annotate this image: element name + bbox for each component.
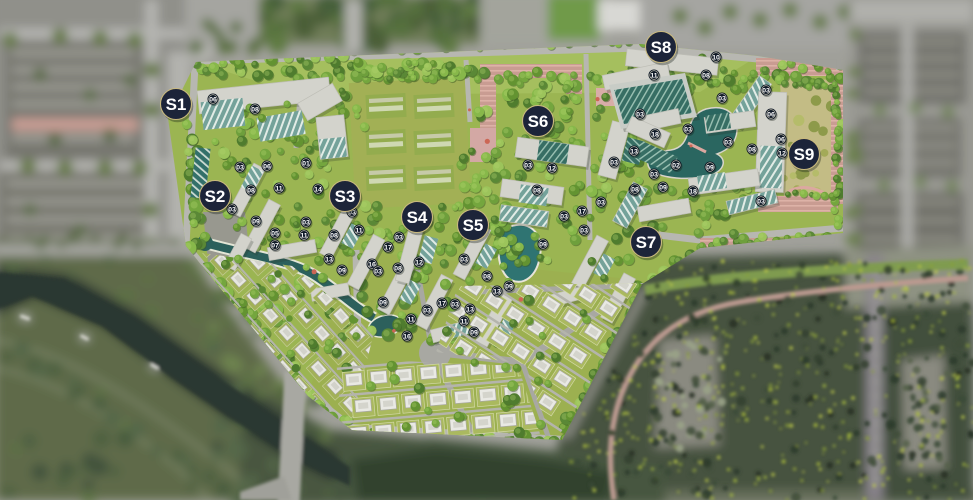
svg-text:03: 03 (597, 200, 605, 207)
svg-text:S5: S5 (463, 216, 484, 235)
svg-text:09: 09 (338, 268, 346, 275)
svg-text:11: 11 (275, 186, 282, 193)
svg-text:03: 03 (395, 235, 403, 242)
svg-text:13: 13 (325, 257, 333, 264)
svg-text:03: 03 (374, 269, 382, 276)
svg-text:07: 07 (271, 243, 279, 250)
svg-text:09: 09 (659, 185, 667, 192)
svg-text:11: 11 (355, 228, 362, 235)
svg-text:05: 05 (271, 231, 279, 238)
svg-text:08: 08 (631, 187, 639, 194)
svg-text:03: 03 (684, 127, 692, 134)
svg-text:S2: S2 (205, 187, 226, 206)
svg-text:09: 09 (470, 330, 478, 337)
svg-text:03: 03 (460, 257, 468, 264)
svg-text:03: 03 (451, 302, 459, 309)
svg-text:11: 11 (407, 317, 414, 324)
svg-text:09: 09 (252, 219, 260, 226)
svg-text:08: 08 (483, 274, 491, 281)
svg-text:12: 12 (778, 151, 786, 158)
svg-text:03: 03 (302, 220, 310, 227)
svg-text:08: 08 (394, 266, 402, 273)
svg-text:17: 17 (578, 209, 586, 216)
svg-text:02: 02 (672, 163, 680, 170)
svg-text:09: 09 (706, 165, 714, 172)
svg-text:S3: S3 (335, 187, 356, 206)
svg-text:18: 18 (651, 132, 659, 139)
svg-text:03: 03 (236, 165, 244, 172)
svg-text:03: 03 (757, 199, 765, 206)
svg-text:03: 03 (610, 160, 618, 167)
svg-text:14: 14 (314, 187, 322, 194)
svg-text:S1: S1 (166, 95, 187, 114)
svg-text:03: 03 (718, 96, 726, 103)
svg-text:09: 09 (379, 300, 387, 307)
svg-text:08: 08 (251, 107, 259, 114)
svg-text:09: 09 (539, 242, 547, 249)
svg-text:13: 13 (493, 289, 501, 296)
svg-text:08: 08 (533, 188, 541, 195)
svg-text:S9: S9 (794, 145, 815, 164)
svg-text:12: 12 (415, 260, 423, 267)
svg-text:10: 10 (712, 55, 720, 62)
svg-text:03: 03 (762, 88, 770, 95)
svg-text:06: 06 (209, 97, 217, 104)
svg-text:08: 08 (702, 73, 710, 80)
svg-text:09: 09 (505, 284, 513, 291)
svg-text:17: 17 (384, 245, 392, 252)
svg-text:08: 08 (247, 188, 255, 195)
svg-text:11: 11 (300, 233, 307, 240)
svg-text:13: 13 (466, 307, 474, 314)
svg-text:03: 03 (423, 308, 431, 315)
svg-text:16: 16 (403, 334, 411, 341)
svg-text:S6: S6 (528, 112, 549, 131)
svg-text:S4: S4 (407, 208, 428, 227)
svg-text:03: 03 (650, 172, 658, 179)
svg-text:03: 03 (724, 140, 732, 147)
svg-text:06: 06 (767, 112, 775, 119)
svg-text:08: 08 (330, 233, 338, 240)
svg-text:06: 06 (777, 137, 785, 144)
svg-text:03: 03 (580, 228, 588, 235)
svg-text:11: 11 (460, 319, 467, 326)
svg-text:13: 13 (630, 149, 638, 156)
svg-text:06: 06 (263, 164, 271, 171)
svg-text:03: 03 (636, 112, 644, 119)
svg-text:01: 01 (302, 161, 310, 168)
svg-text:03: 03 (524, 163, 532, 170)
svg-text:11: 11 (650, 73, 657, 80)
svg-text:03: 03 (560, 214, 568, 221)
svg-text:12: 12 (548, 166, 556, 173)
svg-text:08: 08 (748, 147, 756, 154)
svg-text:S7: S7 (636, 233, 657, 252)
svg-text:S8: S8 (651, 38, 672, 57)
svg-text:18: 18 (689, 189, 697, 196)
svg-text:17: 17 (438, 301, 446, 308)
